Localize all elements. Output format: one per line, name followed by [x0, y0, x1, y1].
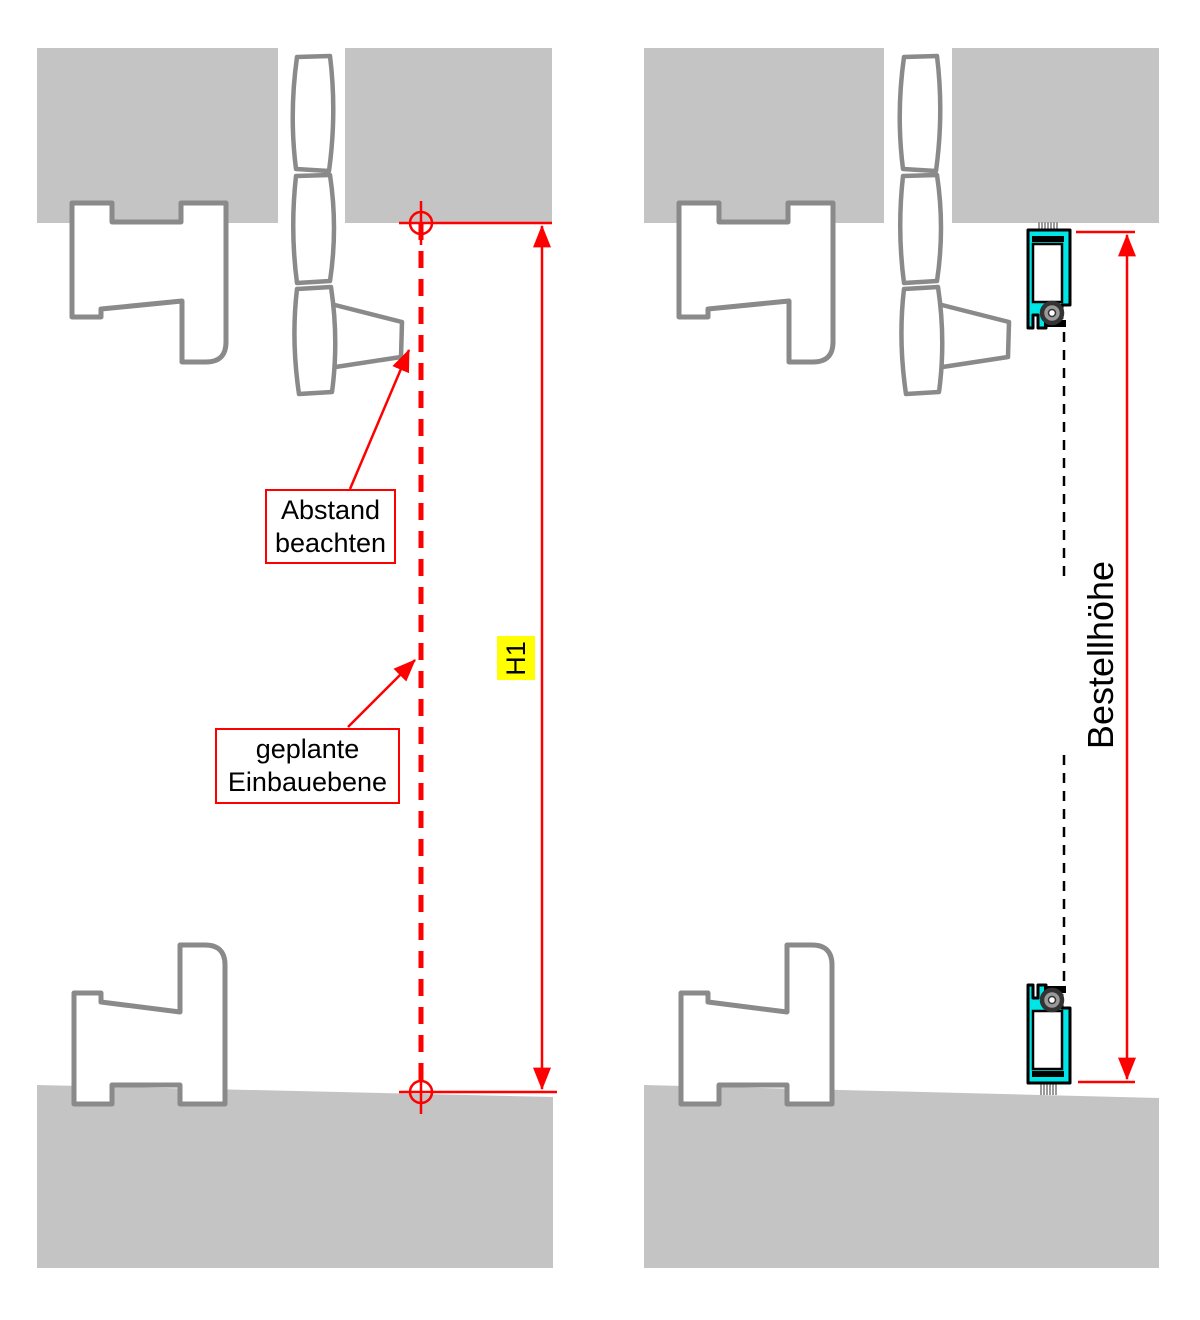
- track-chamber: [1033, 1011, 1062, 1069]
- ceiling-block-left: [37, 48, 278, 223]
- seal-bar: [1032, 236, 1064, 242]
- anchor-hatching-bottom: [1041, 1083, 1056, 1095]
- installation-measurement-diagram: Abstand beachten geplante Einbauebene H1…: [0, 0, 1200, 1320]
- curtain-slat: [900, 175, 941, 283]
- diagram-canvas: [0, 0, 1200, 1320]
- ceiling-block-right: [345, 48, 552, 223]
- floor-block: [37, 1085, 553, 1268]
- callout-line: Einbauebene: [228, 766, 387, 799]
- track-chamber: [1033, 244, 1062, 302]
- roller-axle: [1049, 997, 1056, 1004]
- frame-profile-top: [72, 203, 226, 362]
- curtain-slat: [293, 175, 334, 283]
- leader-line-einbauebene: [348, 660, 415, 727]
- roller-axle: [1049, 310, 1056, 317]
- callout-line: geplante: [256, 733, 360, 766]
- suspension-bracket: [934, 303, 1009, 368]
- suspension-bracket: [327, 303, 402, 368]
- ceiling-block-left: [644, 48, 884, 223]
- callout-line: beachten: [275, 527, 386, 560]
- track-profile-top: [1028, 230, 1070, 328]
- dimension-label-bestellhoehe: Bestellhöhe: [1078, 573, 1124, 737]
- frame-profile-top: [679, 203, 833, 362]
- seal-bar: [1032, 1071, 1064, 1077]
- curtain-slat: [900, 56, 941, 171]
- callout-geplante-einbauebene: geplante Einbauebene: [215, 728, 400, 804]
- frame-profile-bottom: [74, 945, 225, 1104]
- dimension-label-h1: H1: [497, 636, 535, 680]
- left-diagram: [37, 48, 557, 1268]
- leader-line-abstand: [350, 350, 409, 489]
- ceiling-block-right: [952, 48, 1159, 223]
- track-profile-bottom: [1028, 985, 1070, 1083]
- curtain-slat: [294, 287, 335, 394]
- curtain-slat: [901, 287, 942, 394]
- floor-block: [644, 1085, 1159, 1268]
- frame-profile-bottom: [681, 945, 832, 1104]
- callout-line: Abstand: [281, 494, 380, 527]
- curtain-slat: [293, 56, 334, 171]
- callout-abstand-beachten: Abstand beachten: [265, 489, 396, 564]
